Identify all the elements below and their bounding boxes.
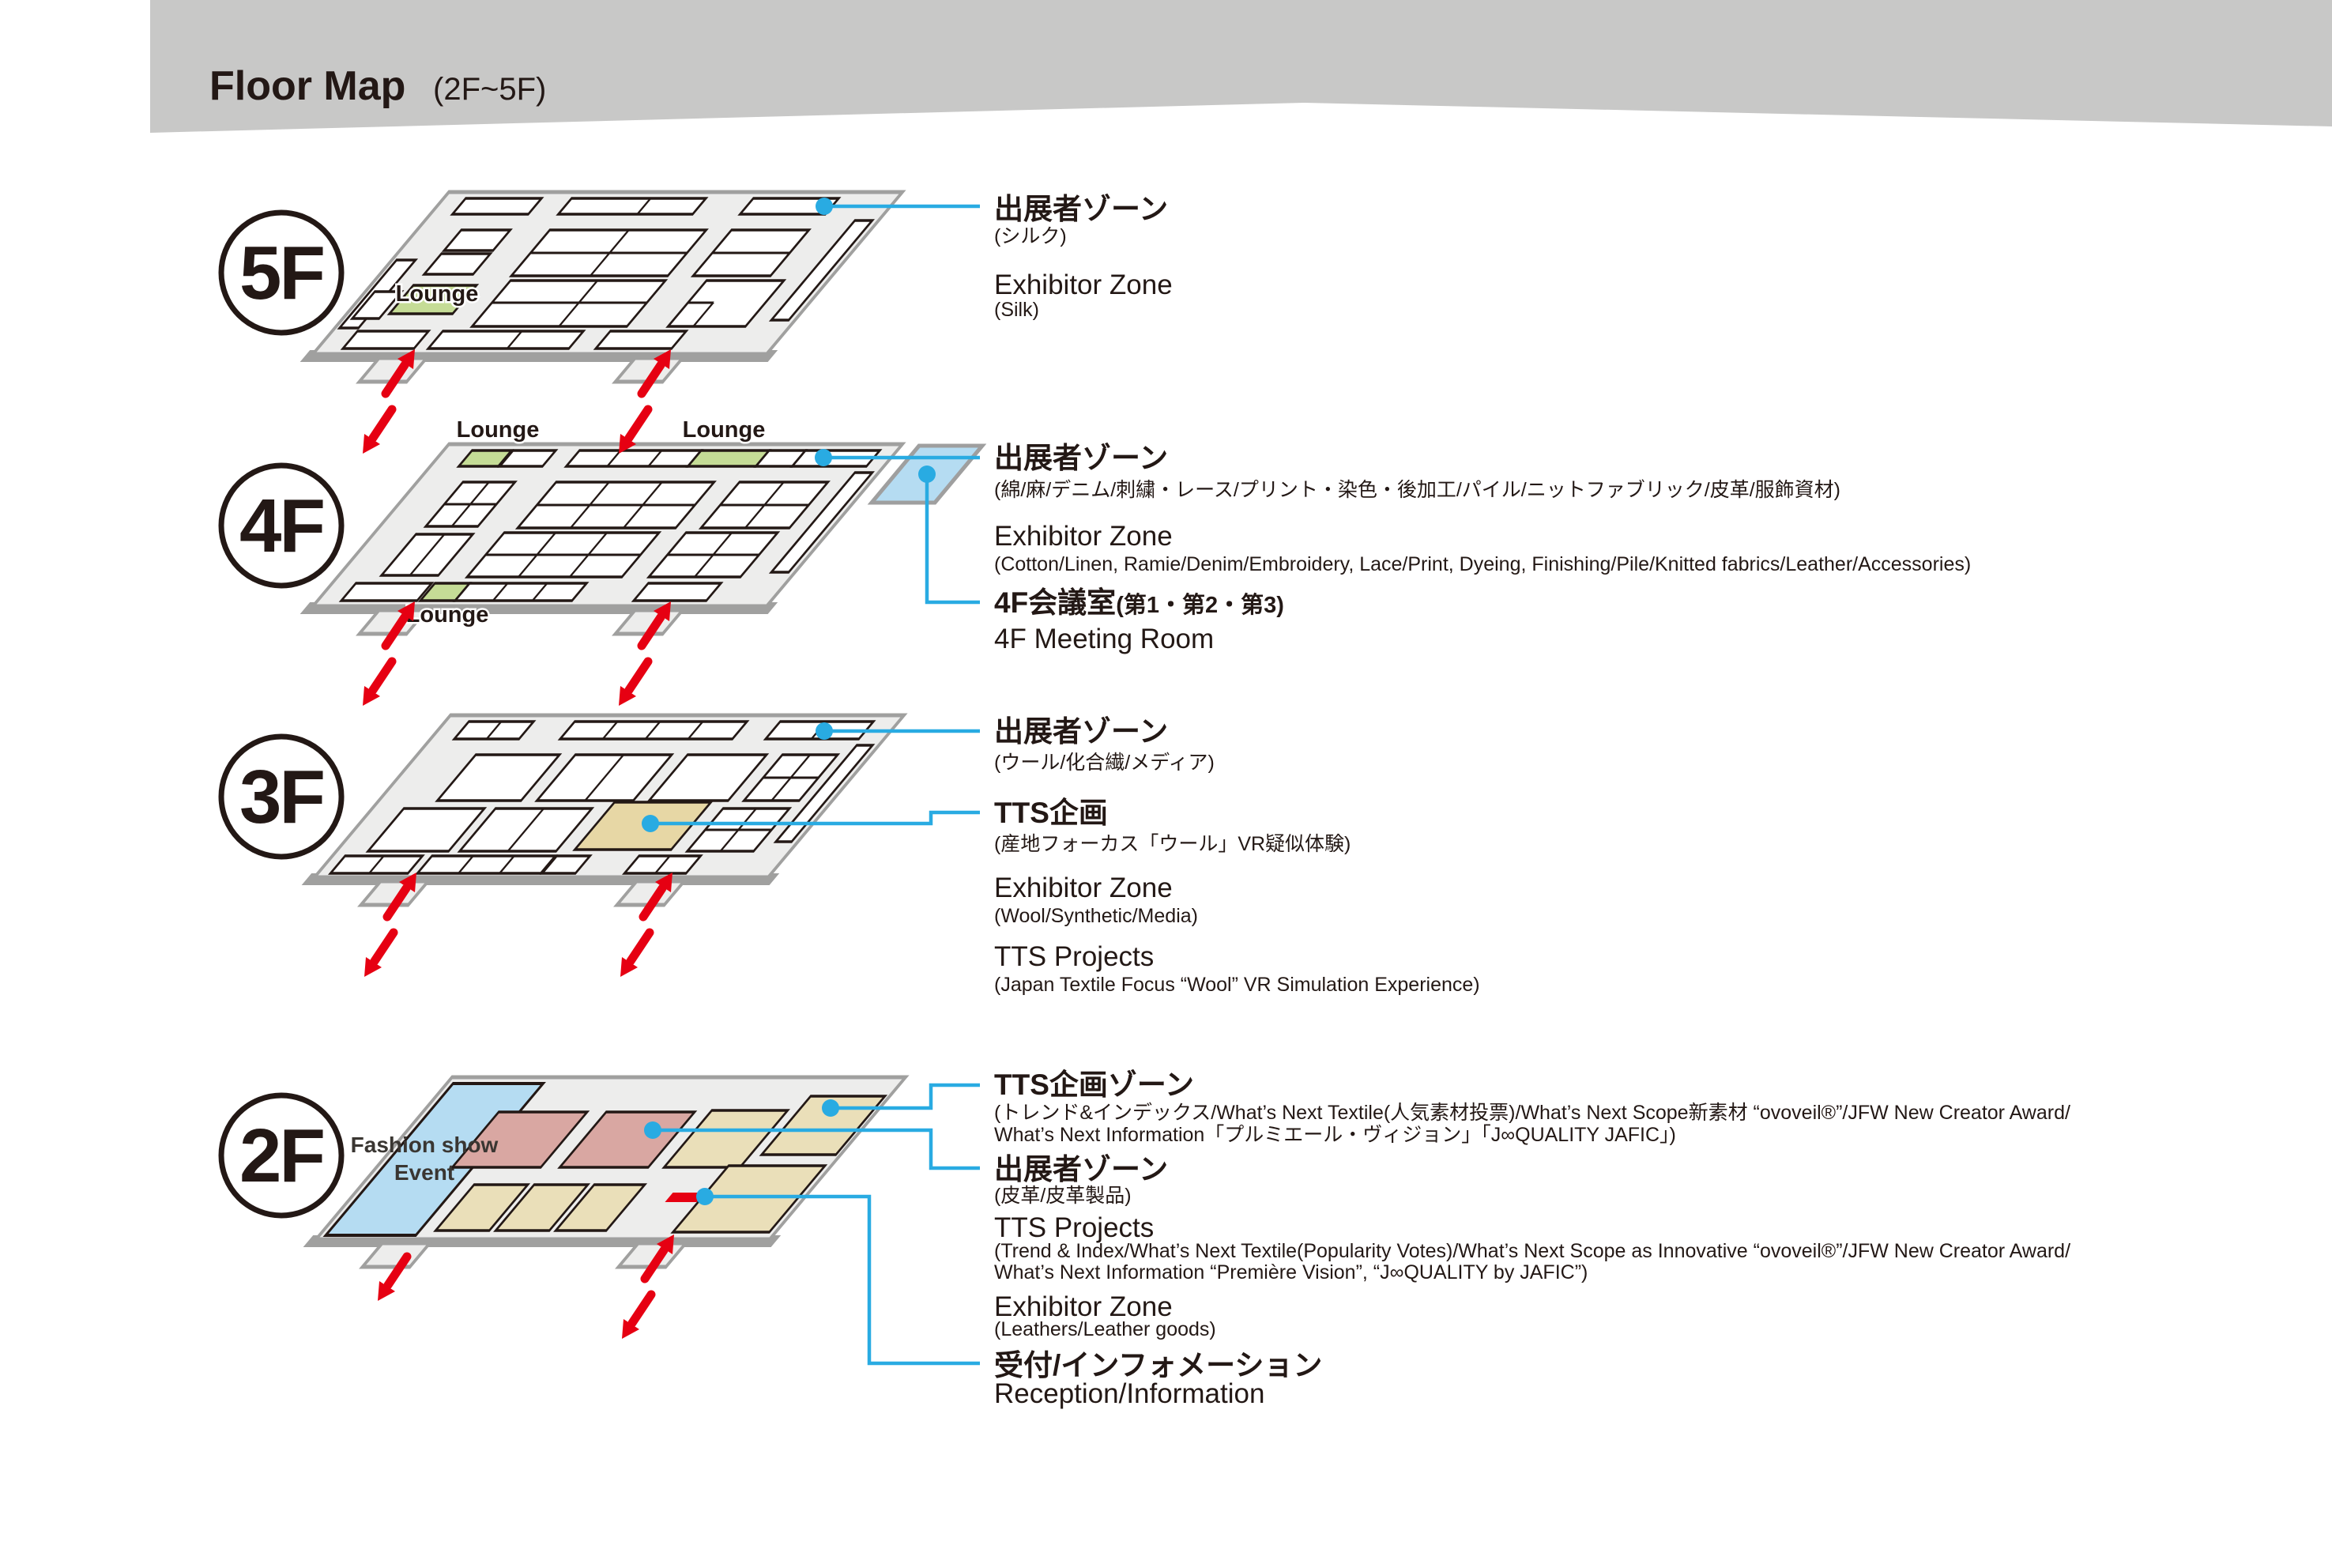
floor-map-diagram: Floor Map (2F~5F) [0,0,2332,1568]
floor-badge-3f-label: 3F [239,755,323,839]
fashion-show-label-line2: Event [394,1160,454,1185]
label-2f-tts-zone-jp: TTS企画ゾーン [994,1068,1194,1101]
callout-dot [816,722,833,740]
floor-2f: Fashion show Event [287,1077,914,1267]
callout-dot [822,1099,839,1117]
label-5f-zone-jp: 出展者ゾーン [994,193,1168,225]
callout-dot [696,1188,714,1205]
label-2f-tts-projects-en-sub2: What’s Next Information “Première Vision… [994,1261,1588,1283]
lounge-label: Lounge [396,281,479,307]
callout-dot [815,449,832,466]
label-3f-tts-jp-sub: (産地フォーカス「ウール」VR疑似体験) [994,833,1351,855]
label-2f-reception-jp: 受付/インフォメーション [994,1349,1322,1381]
label-2f-exhibitor-en-sub: (Leathers/Leather goods) [994,1318,1216,1340]
lounge-label: Lounge [406,602,489,628]
label-5f-zone-en-sub: (Silk) [994,299,1039,321]
label-3f-zone-jp: 出展者ゾーン [994,715,1168,748]
fashion-show-label-line1: Fashion show [351,1133,499,1157]
label-4f-meeting-jp-paren: (第1・第2・第3) [1116,591,1284,618]
label-3f-zone-en: Exhibitor Zone [994,873,1173,903]
label-2f-tts-zone-jp-sub2: What’s Next Information「プルミエール・ヴィジョン」「J∞… [994,1124,1676,1146]
booth [596,331,686,349]
callout-dot [816,198,833,215]
callout-dot [644,1121,661,1139]
label-5f-zone-jp-sub: (シルク) [994,225,1067,247]
booth [559,198,706,214]
booth [417,856,555,873]
floor-map-page: Floor Map (2F~5F) [0,0,2332,1568]
callout-dot [918,465,936,483]
booth [428,331,583,349]
label-2f-tts-zone-jp-sub1: (トレンド&インデックス/What’s Next Textile(人気素材投票)… [994,1102,2070,1124]
floor-5f: Lounge [284,192,910,382]
booth [455,583,586,601]
label-4f-meeting-jp-main: 4F会議室 [994,586,1116,619]
label-2f-tts-projects-en-sub1: (Trend & Index/What’s Next Textile(Popul… [994,1240,2070,1262]
label-2f-zone-jp-sub: (皮革/皮革製品) [994,1185,1132,1207]
callout-dot [642,815,659,832]
label-3f-tts-en: TTS Projects [994,941,1154,972]
label-3f-zone-en-sub: (Wool/Synthetic/Media) [994,905,1198,927]
booth [343,331,428,349]
page-title: Floor Map [209,63,405,109]
floor-badge-4f-label: 4F [239,484,323,568]
label-2f-tts-projects-en: TTS Projects [994,1212,1154,1243]
lounge-label: Lounge [683,417,766,443]
floor-badge-5f-label: 5F [239,231,323,315]
floor-4f: Lounge Lounge Lounge [284,417,910,634]
floor-badge-2f-label: 2F [239,1114,323,1198]
label-3f-tts-jp: TTS企画 [994,796,1108,829]
booth [341,583,431,601]
lounge-label: Lounge [457,417,540,443]
booth [567,450,702,466]
label-4f-meeting-jp: 4F会議室(第1・第2・第3) [994,586,1284,619]
label-3f-zone-jp-sub: (ウール/化合繊/メディア) [994,752,1215,774]
label-2f-zone-jp: 出展者ゾーン [994,1153,1168,1185]
label-2f-reception-en: Reception/Information [994,1378,1264,1409]
label-4f-zone-en: Exhibitor Zone [994,521,1173,552]
label-4f-zone-jp-sub: (綿/麻/デニム/刺繍・レース/プリント・染色・後加工/パイル/ニットファブリッ… [994,479,1840,501]
label-4f-zone-en-sub: (Cotton/Linen, Ramie/Denim/Embroidery, L… [994,553,1971,575]
label-4f-meeting-en: 4F Meeting Room [994,624,1214,654]
header-band [150,0,2332,133]
booth [453,198,542,214]
label-3f-tts-en-sub: (Japan Textile Focus “Wool” VR Simulatio… [994,974,1480,996]
label-4f-zone-jp: 出展者ゾーン [994,442,1168,474]
floor-3f [285,715,912,905]
booth [634,583,721,601]
page-title-range: (2F~5F) [433,72,546,107]
label-5f-zone-en: Exhibitor Zone [994,269,1173,300]
